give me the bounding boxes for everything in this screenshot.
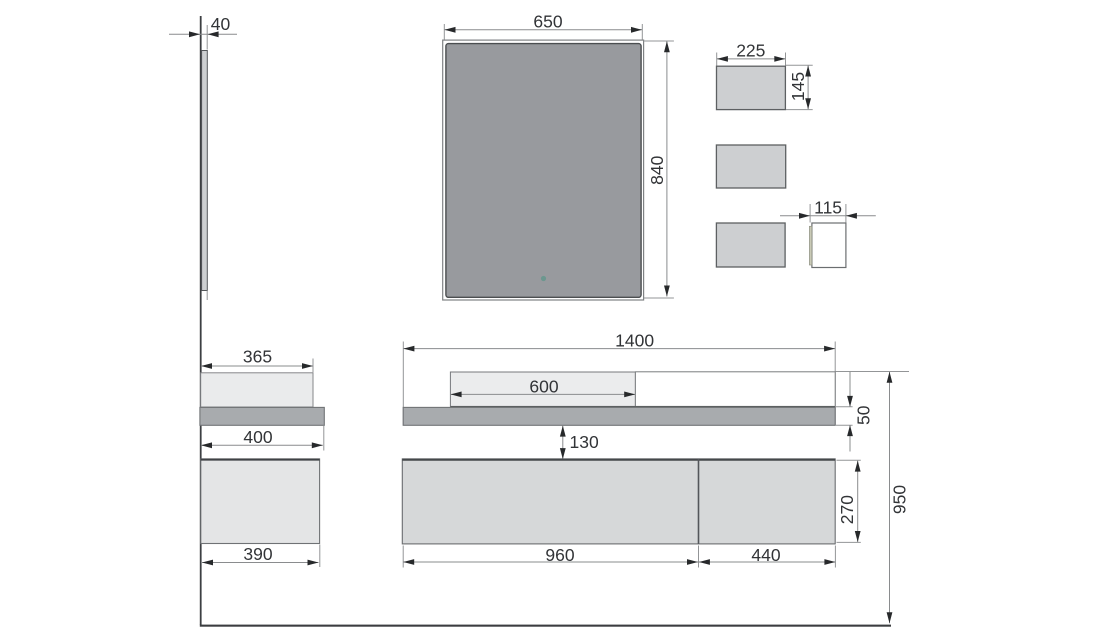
svg-text:130: 130 <box>570 432 599 452</box>
svg-text:1400: 1400 <box>615 330 654 350</box>
svg-text:960: 960 <box>545 545 574 565</box>
svg-text:840: 840 <box>647 155 667 184</box>
svg-text:40: 40 <box>211 14 231 34</box>
svg-text:145: 145 <box>788 72 808 101</box>
svg-text:650: 650 <box>533 12 562 32</box>
svg-text:270: 270 <box>837 495 857 524</box>
svg-text:115: 115 <box>814 197 842 217</box>
svg-text:225: 225 <box>736 40 765 60</box>
svg-text:50: 50 <box>853 405 873 425</box>
svg-text:600: 600 <box>529 376 558 396</box>
svg-text:950: 950 <box>890 485 910 514</box>
svg-text:440: 440 <box>751 545 780 565</box>
svg-text:400: 400 <box>243 427 272 447</box>
svg-text:365: 365 <box>243 347 272 367</box>
svg-text:390: 390 <box>243 544 272 564</box>
